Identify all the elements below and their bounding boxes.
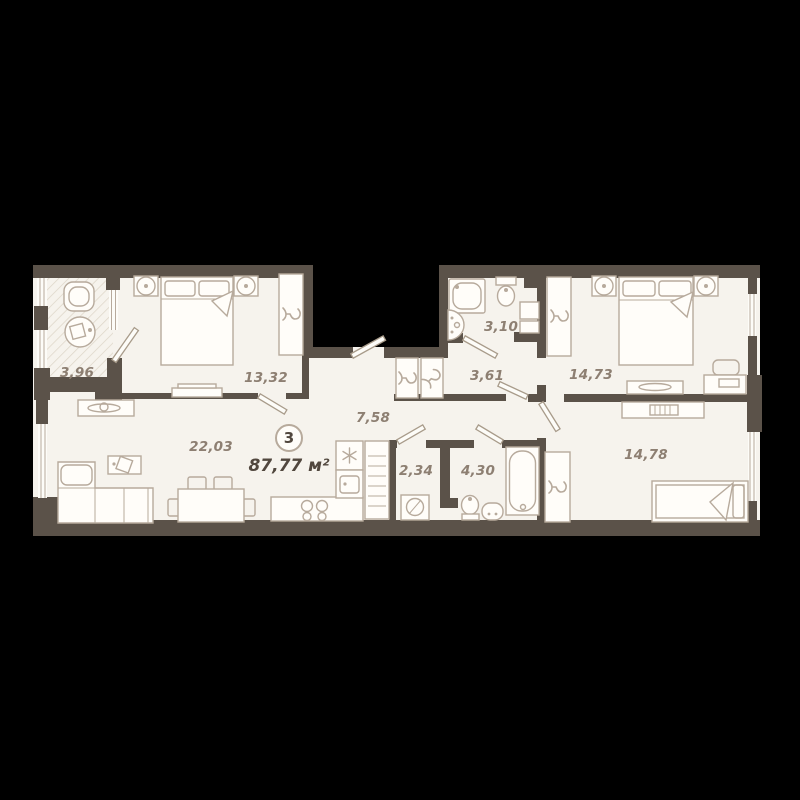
tv-stand bbox=[172, 384, 222, 397]
window-balcony-left-1 bbox=[37, 278, 47, 306]
console-table bbox=[78, 400, 134, 416]
double-bed bbox=[619, 277, 693, 365]
shower-tray bbox=[449, 279, 485, 313]
nightstand-left bbox=[134, 276, 158, 296]
kitchen-sink-cabinet bbox=[336, 470, 363, 498]
fridge bbox=[336, 441, 363, 470]
round-table bbox=[65, 317, 95, 347]
closet-2 bbox=[421, 358, 443, 398]
room-label-bathroom-large: 4,30 bbox=[460, 463, 495, 479]
screenshot-stage: 3,96 13,32 3,10 14,73 3,61 7,58 22,03 2,… bbox=[0, 0, 800, 800]
room-label-hallway: 3,61 bbox=[470, 368, 504, 384]
room-label-bedroom-third: 14,78 bbox=[624, 447, 668, 463]
wardrobe bbox=[545, 452, 570, 522]
room-label-bathroom-small: 3,10 bbox=[484, 319, 518, 335]
dresser bbox=[622, 402, 704, 418]
wardrobe bbox=[279, 274, 303, 355]
nightstand-right bbox=[694, 276, 718, 296]
kitchen-counter bbox=[271, 497, 363, 521]
room-label-corridor: 7,58 bbox=[356, 410, 390, 426]
desk-with-chair bbox=[108, 456, 141, 474]
toilet bbox=[496, 277, 516, 306]
toilet bbox=[462, 496, 480, 521]
room-label-balcony: 3,96 bbox=[60, 365, 94, 381]
window-bedroom-right bbox=[748, 294, 756, 336]
washing-machine bbox=[401, 495, 429, 520]
window-balcony-left-2 bbox=[37, 330, 47, 368]
armchair bbox=[64, 282, 94, 311]
wardrobe bbox=[547, 277, 571, 356]
single-bed bbox=[652, 481, 748, 522]
total-area-label: 87,77 м² bbox=[248, 456, 330, 476]
room-label-living-kitchen: 22,03 bbox=[189, 439, 233, 455]
nightstand-right bbox=[234, 276, 258, 296]
room-label-bedroom-main: 13,32 bbox=[244, 370, 288, 386]
window-living-left bbox=[38, 424, 47, 498]
shelving-unit bbox=[365, 441, 389, 519]
balcony-glazing bbox=[109, 290, 118, 330]
nightstand-left bbox=[592, 276, 616, 296]
laundry-fixtures bbox=[401, 495, 429, 520]
tv-console bbox=[627, 381, 683, 394]
window-bedroom-third bbox=[748, 432, 756, 501]
double-bed bbox=[161, 277, 233, 365]
closet-1 bbox=[396, 358, 418, 398]
sink bbox=[482, 503, 503, 520]
bathtub bbox=[506, 447, 539, 515]
floor-plan: 3,96 13,32 3,10 14,73 3,61 7,58 22,03 2,… bbox=[0, 0, 800, 800]
room-label-bedroom-right: 14,73 bbox=[569, 367, 613, 383]
badge-number: 3 bbox=[284, 429, 294, 447]
bath-cabinet bbox=[520, 302, 539, 333]
room-label-laundry: 2,34 bbox=[399, 463, 433, 479]
